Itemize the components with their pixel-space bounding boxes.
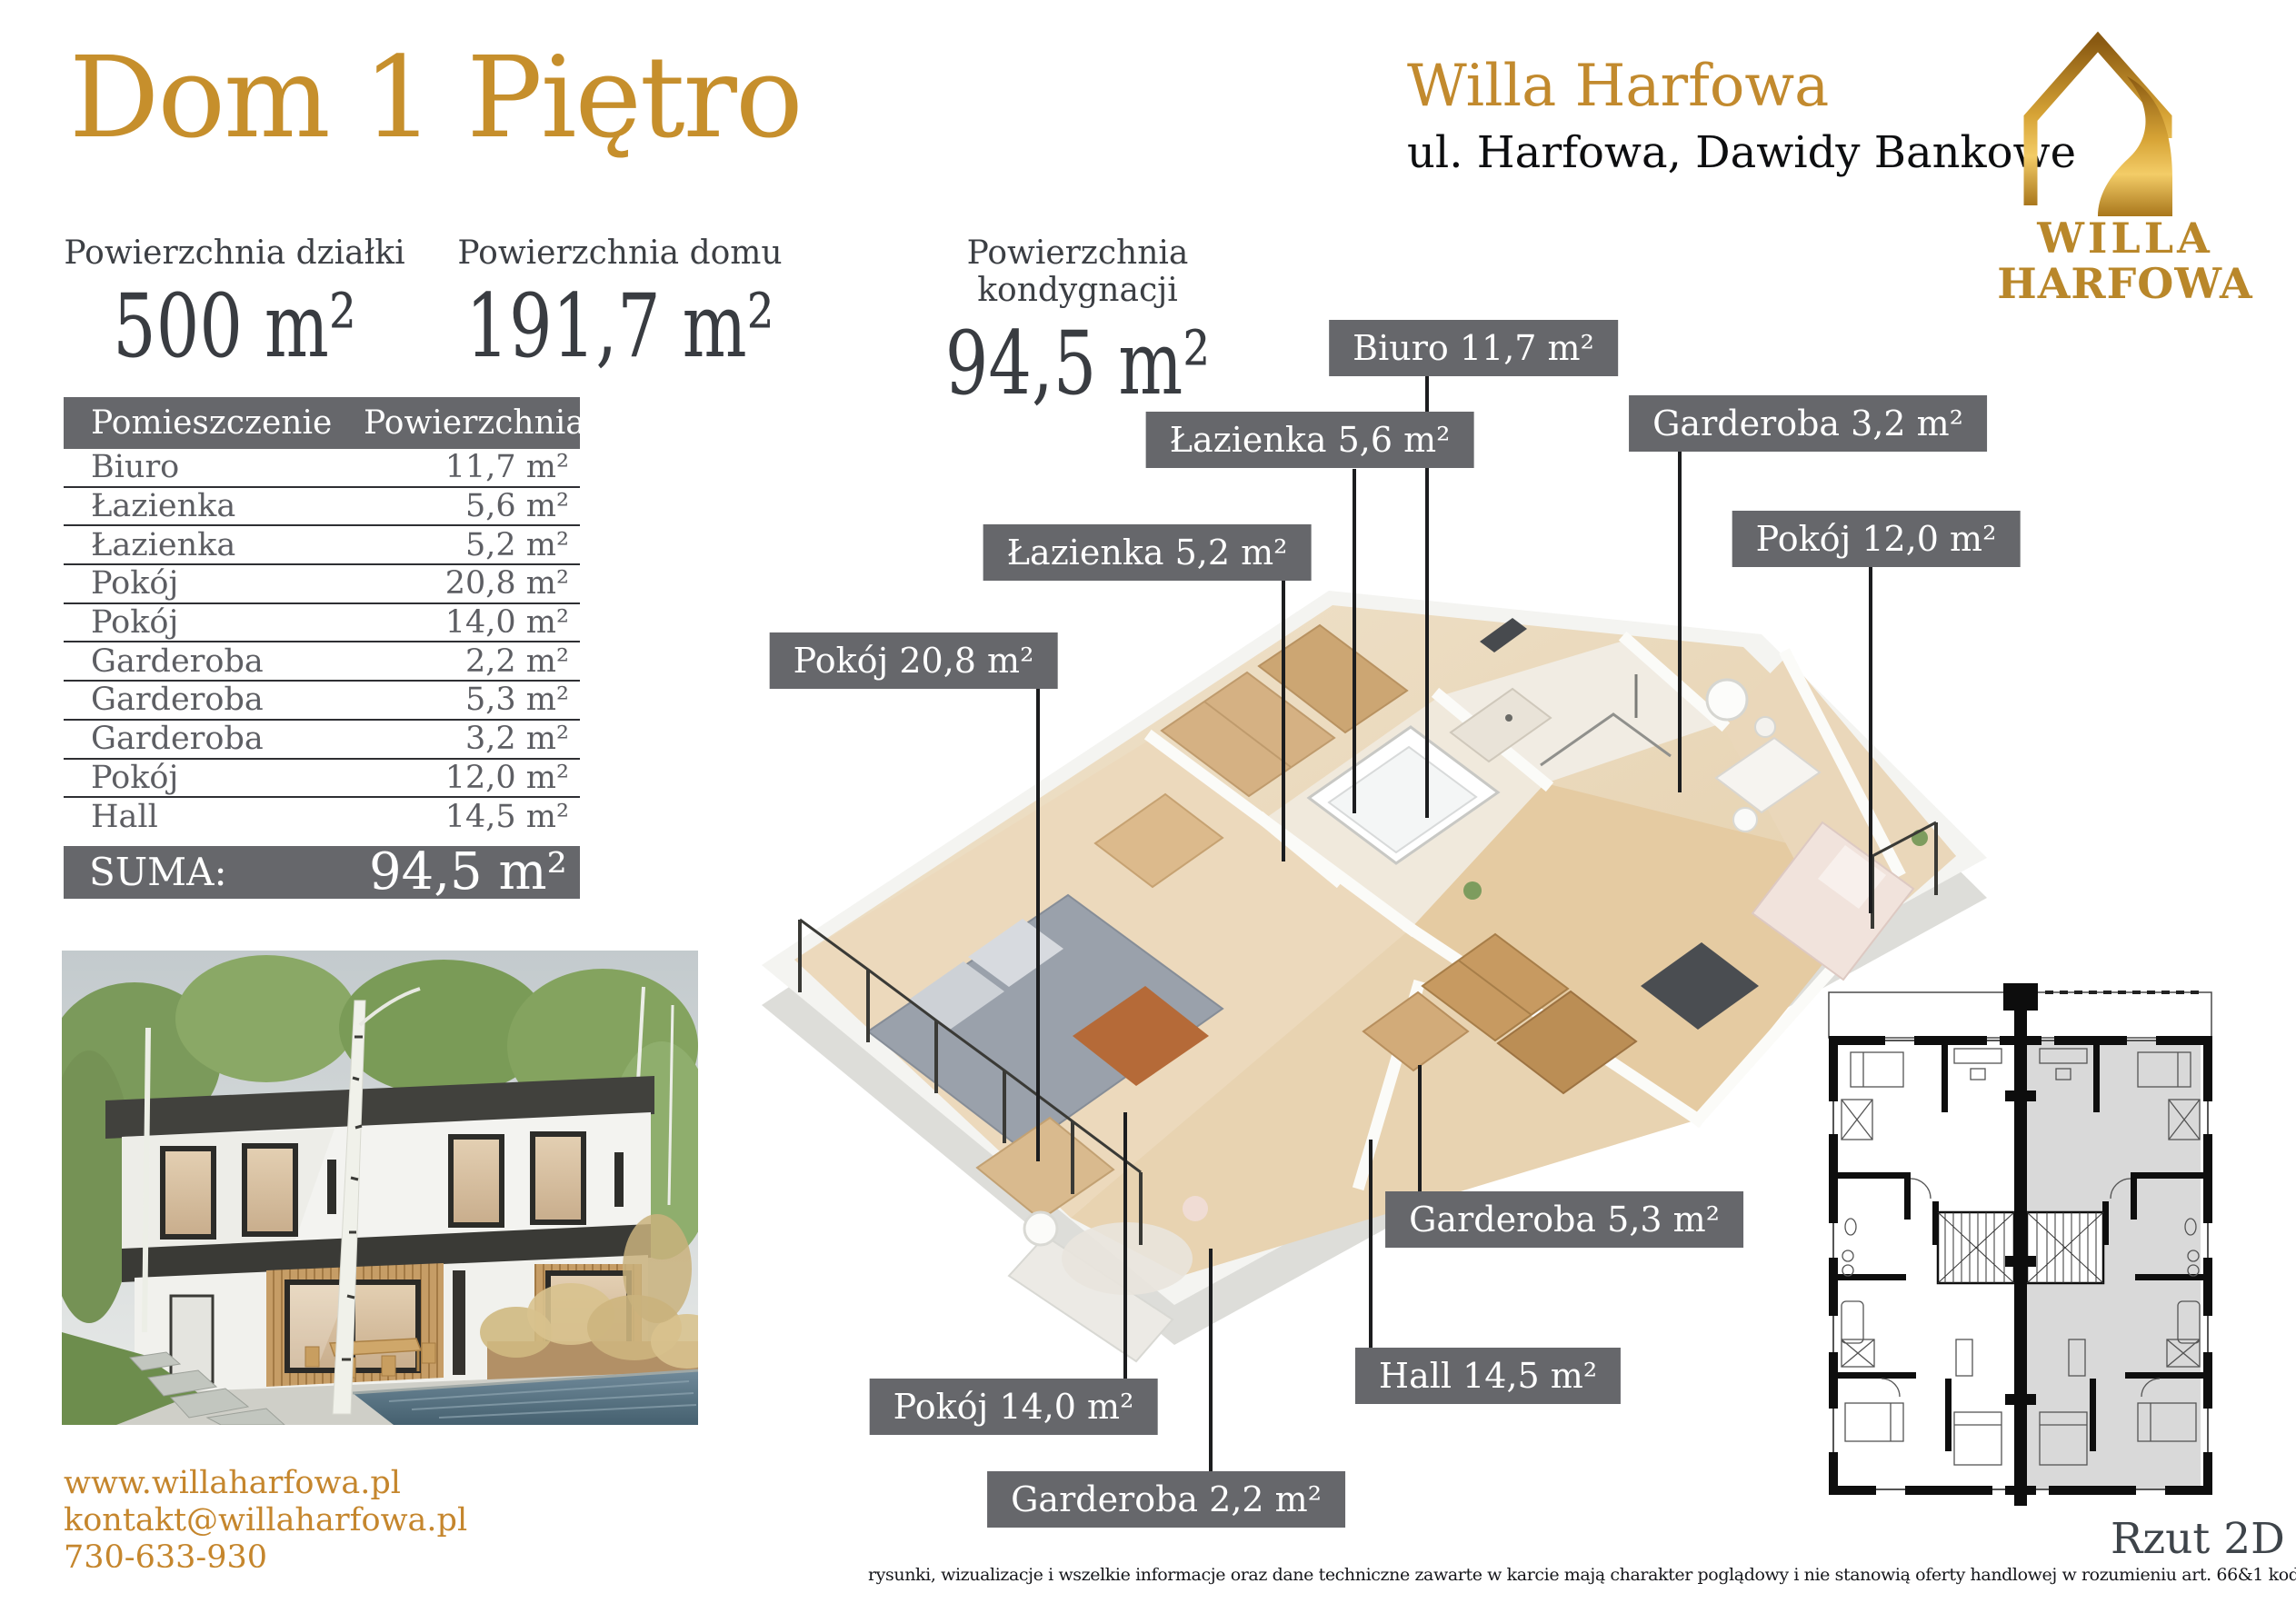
table-row: Pokój12,0 m² (64, 760, 580, 799)
stat-label: Powierzchnia kondygnacji (862, 234, 1293, 309)
table-header-row: Pomieszczenie Powierzchnia (64, 397, 580, 449)
room-area-cell: 5,6 m² (369, 488, 580, 524)
plan-room-label: Garderoba 3,2 m² (1629, 395, 1987, 452)
room-name-cell: Pokój (64, 565, 369, 602)
plan-room-label: Pokój 12,0 m² (1732, 511, 2021, 567)
house-photo (62, 951, 698, 1425)
stat-block: Powierzchnia domu191,7 m² (420, 234, 820, 377)
table-body: Biuro11,7 m²Łazienka5,6 m²Łazienka5,2 m²… (64, 449, 580, 835)
room-area-cell: 5,3 m² (369, 682, 580, 718)
floor-plan-2d (1818, 983, 2223, 1512)
room-area-cell: 3,2 m² (369, 721, 580, 757)
plan-room-label: Pokój 14,0 m² (870, 1379, 1158, 1435)
sum-label: SUMA: (64, 850, 227, 894)
room-name-cell: Pokój (64, 760, 369, 796)
table-sum-row: SUMA: 94,5 m² (64, 846, 580, 899)
plan-room-label: Garderoba 5,3 m² (1385, 1191, 1743, 1248)
stat-block: Powierzchnia kondygnacji94,5 m² (862, 234, 1293, 414)
room-area-cell: 5,2 m² (369, 527, 580, 563)
brochure-page: Biuro 11,7 m²Łazienka 5,6 m²Garderoba 3,… (0, 0, 2296, 1623)
legal-disclaimer: rysunki, wizualizacje i wszelkie informa… (868, 1565, 2296, 1585)
room-area-cell: 14,0 m² (369, 604, 580, 641)
contact-block: www.willaharfowa.pl kontakt@willaharfowa… (64, 1465, 467, 1577)
willa-harfowa-logo: WILLA HARFOWA (1991, 24, 2260, 307)
website-link[interactable]: www.willaharfowa.pl (64, 1465, 467, 1502)
stat-value: 500 m² (93, 275, 376, 377)
plan-room-label: Łazienka 5,2 m² (983, 524, 1312, 581)
table-header-area: Powierzchnia (364, 404, 580, 442)
table-row: Łazienka5,6 m² (64, 488, 580, 527)
table-row: Biuro11,7 m² (64, 449, 580, 488)
room-area-cell: 20,8 m² (369, 565, 580, 602)
stat-label: Powierzchnia działki (53, 234, 416, 272)
room-area-cell: 12,0 m² (369, 760, 580, 796)
room-name-cell: Łazienka (64, 527, 369, 563)
room-name-cell: Biuro (64, 449, 369, 485)
room-area-cell: 2,2 m² (369, 643, 580, 680)
room-name-cell: Garderoba (64, 682, 369, 718)
table-header-room: Pomieszczenie (64, 404, 364, 442)
table-row: Garderoba5,3 m² (64, 682, 580, 721)
room-name-cell: Hall (64, 799, 369, 835)
logo-text-line2: HARFOWA (1997, 259, 2253, 307)
room-name-cell: Pokój (64, 604, 369, 641)
room-name-cell: Garderoba (64, 643, 369, 680)
table-row: Hall14,5 m² (64, 798, 580, 835)
stat-value: 94,5 m² (909, 313, 1246, 414)
plan-room-label: Biuro 11,7 m² (1329, 320, 1618, 376)
page-title: Dom 1 Piętro (69, 36, 802, 160)
brand-address: ul. Harfowa, Dawidy Bankowe (1407, 127, 2076, 178)
table-row: Garderoba3,2 m² (64, 721, 580, 760)
house-harp-icon (2031, 42, 2172, 216)
plan-room-label: Łazienka 5,6 m² (1146, 412, 1474, 468)
plan-room-label: Garderoba 2,2 m² (987, 1471, 1345, 1528)
email-link[interactable]: kontakt@willaharfowa.pl (64, 1502, 467, 1539)
room-name-cell: Garderoba (64, 721, 369, 757)
room-name-cell: Łazienka (64, 488, 369, 524)
room-area-cell: 11,7 m² (369, 449, 580, 485)
plan2d-caption: Rzut 2D (2111, 1514, 2285, 1564)
table-row: Pokój20,8 m² (64, 565, 580, 604)
table-row: Łazienka5,2 m² (64, 526, 580, 565)
table-row: Pokój14,0 m² (64, 604, 580, 643)
table-row: Garderoba2,2 m² (64, 642, 580, 682)
room-area-cell: 14,5 m² (369, 799, 580, 835)
sum-value: 94,5 m² (369, 842, 580, 901)
stat-block: Powierzchnia działki500 m² (53, 234, 416, 377)
logo-text-line1: WILLA (2036, 214, 2213, 263)
plan-room-label: Pokój 20,8 m² (770, 632, 1058, 689)
brand-name: Willa Harfowa (1407, 53, 1829, 120)
phone-number[interactable]: 730-633-930 (64, 1539, 467, 1577)
stat-label: Powierzchnia domu (420, 234, 820, 272)
room-area-table: Pomieszczenie Powierzchnia Biuro11,7 m²Ł… (64, 397, 580, 899)
stat-value: 191,7 m² (464, 275, 775, 377)
plan-room-label: Hall 14,5 m² (1355, 1348, 1621, 1404)
